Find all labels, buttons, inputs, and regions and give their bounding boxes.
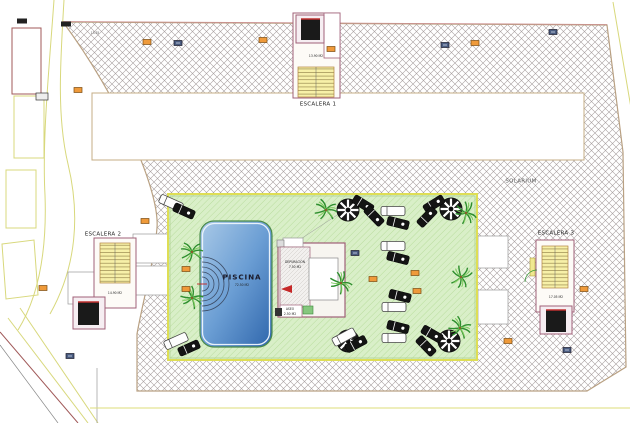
marker-icon <box>182 287 190 292</box>
pool-name-label: PISCINA <box>222 273 261 281</box>
marker-icon <box>369 277 377 282</box>
marker-icon <box>143 40 151 45</box>
marker-icon <box>563 348 571 353</box>
marker-icon <box>17 19 27 24</box>
escalera-1-landing-label: 13.90 M2 <box>309 54 323 57</box>
depuracion-room <box>280 247 310 307</box>
sun-lounger-icon <box>381 242 405 251</box>
escalera-3-label: ESCALERA 3 <box>538 230 574 236</box>
marker-icon <box>174 41 182 46</box>
marker-icon <box>141 219 149 224</box>
pool-house <box>275 238 345 317</box>
marker-icon <box>411 271 419 276</box>
elevator-icon <box>301 19 320 40</box>
marker-icon <box>441 43 449 48</box>
marker-icon <box>504 339 512 344</box>
sun-lounger-icon <box>382 303 406 312</box>
escalera-2-landing-label: 14.90 M2 <box>108 291 122 294</box>
marker-icon <box>182 267 190 272</box>
sun-lounger-icon <box>381 207 405 216</box>
marker-icon <box>61 22 71 27</box>
solarium-label: SOLARIUM <box>505 178 536 184</box>
elevator-icon <box>78 302 99 325</box>
escalera-2-label: ESCALERA 2 <box>85 231 121 237</box>
plan-drawing <box>0 0 630 423</box>
escalera-1-label: ESCALERA 1 <box>300 101 336 107</box>
marker-icon <box>580 287 588 292</box>
marker-icon <box>549 30 557 35</box>
marker-icon <box>259 38 267 43</box>
roof-level-note: 13.35 <box>91 31 100 34</box>
depuracion-label: DEPURACIÓN <box>285 260 305 263</box>
marker-icon <box>351 251 359 256</box>
marker-icon <box>413 289 421 294</box>
depuracion-area-label: 7.50 M2 <box>289 265 301 268</box>
marker-icon <box>74 88 82 93</box>
marker-icon <box>327 47 335 52</box>
roof-opening <box>92 93 584 160</box>
aseo-label: ASEO <box>286 307 294 310</box>
marker-icon <box>39 286 47 291</box>
sun-lounger-icon <box>382 334 406 343</box>
marker-icon <box>66 354 74 359</box>
pool-area-label: 72.50 M2 <box>235 283 249 286</box>
rooftop-solarium-floor-plan: ESCALERA 1 ESCALERA 2 ESCALERA 3 SOLARIU… <box>0 0 630 423</box>
escalera-3-landing-label: 17.05 M2 <box>549 295 563 298</box>
aseo-area-label: 2.50 M2 <box>284 312 296 315</box>
marker-icon <box>471 41 479 46</box>
parasol-icon <box>438 330 460 352</box>
elevator-icon <box>546 310 566 332</box>
